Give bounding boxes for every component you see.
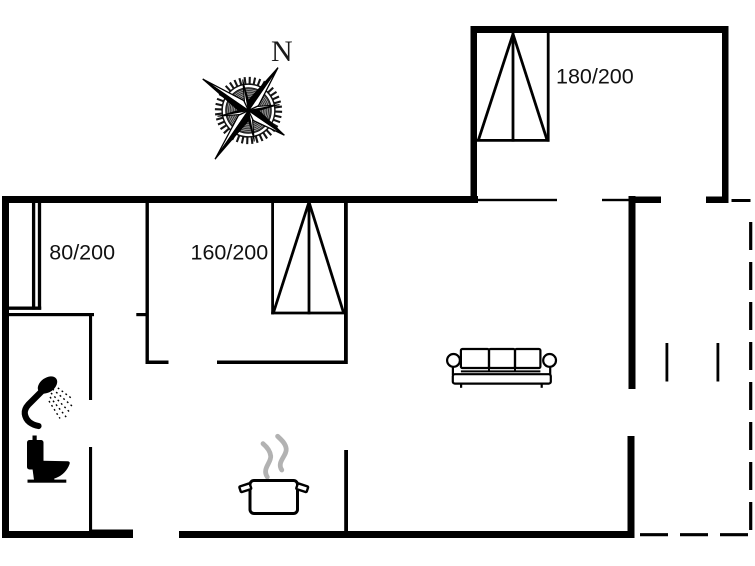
- svg-text:180/200: 180/200: [556, 64, 634, 88]
- svg-text:80/200: 80/200: [49, 240, 115, 264]
- svg-text:160/200: 160/200: [191, 240, 269, 264]
- svg-text:N: N: [271, 35, 293, 68]
